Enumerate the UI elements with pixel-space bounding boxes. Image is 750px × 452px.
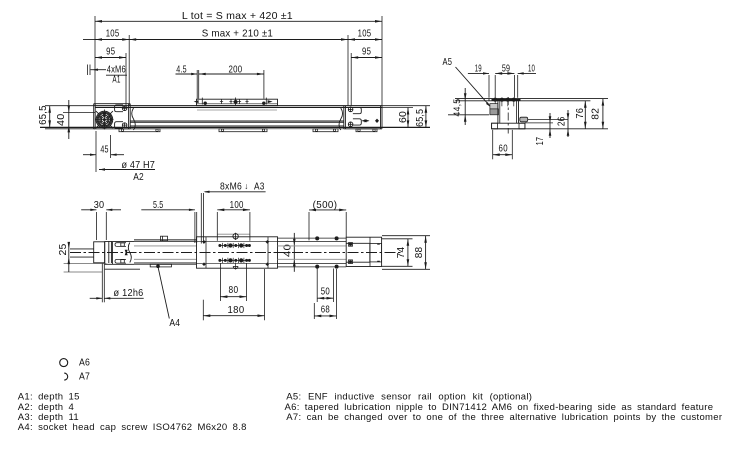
- svg-text:95: 95: [362, 45, 371, 57]
- svg-text:8xM6: 8xM6: [220, 181, 242, 192]
- svg-text:50: 50: [321, 286, 330, 298]
- svg-text:76: 76: [575, 108, 586, 119]
- svg-text:5.5: 5.5: [153, 199, 164, 211]
- svg-text:44,5: 44,5: [452, 99, 463, 117]
- svg-text:ø 12h6: ø 12h6: [114, 287, 144, 299]
- svg-text:A1: A1: [112, 75, 120, 86]
- svg-text:82: 82: [591, 108, 602, 120]
- svg-text:30: 30: [94, 199, 105, 211]
- svg-text:60: 60: [499, 143, 508, 155]
- svg-text:180: 180: [228, 304, 245, 316]
- svg-text:74: 74: [396, 247, 407, 259]
- svg-text:A7: can be changed over to one: A7: can be changed over to one of the th…: [286, 412, 722, 423]
- svg-text:105: 105: [106, 27, 120, 39]
- svg-text:19: 19: [475, 63, 482, 75]
- svg-text:(500): (500): [313, 199, 338, 211]
- svg-text:105: 105: [358, 27, 372, 39]
- svg-text:95: 95: [106, 45, 115, 57]
- svg-text:65,5: 65,5: [415, 109, 426, 127]
- svg-text:59: 59: [502, 63, 510, 75]
- svg-text:A6: A6: [79, 358, 90, 369]
- svg-text:A7: A7: [79, 372, 90, 383]
- svg-text:68: 68: [321, 303, 330, 315]
- svg-text:17: 17: [535, 137, 546, 146]
- svg-text:ø 47 H7: ø 47 H7: [121, 159, 155, 171]
- svg-text:A5: A5: [443, 56, 453, 68]
- svg-text:4.5: 4.5: [176, 64, 187, 76]
- svg-text:A3: A3: [254, 181, 265, 192]
- svg-text:L tot = S max + 420 ±1: L tot = S max + 420 ±1: [182, 10, 293, 22]
- svg-text:A2: A2: [133, 171, 144, 183]
- svg-text:25: 25: [58, 243, 69, 255]
- svg-text:A4: A4: [169, 317, 180, 329]
- svg-text:65,5: 65,5: [38, 105, 49, 125]
- svg-text:A4: socket head cap screw ISO4: A4: socket head cap screw ISO4762 M6x20 …: [18, 422, 247, 433]
- svg-text:↓: ↓: [244, 181, 248, 191]
- svg-text:26: 26: [557, 116, 568, 126]
- svg-text:10: 10: [528, 63, 535, 75]
- svg-text:40: 40: [56, 113, 67, 126]
- svg-text:200: 200: [229, 64, 243, 76]
- svg-text:60: 60: [398, 111, 409, 123]
- svg-text:80: 80: [229, 284, 239, 296]
- svg-text:100: 100: [230, 199, 244, 211]
- svg-text:S max + 210 ±1: S max + 210 ±1: [202, 27, 273, 39]
- svg-text:88: 88: [414, 246, 425, 258]
- svg-text:45: 45: [100, 143, 108, 155]
